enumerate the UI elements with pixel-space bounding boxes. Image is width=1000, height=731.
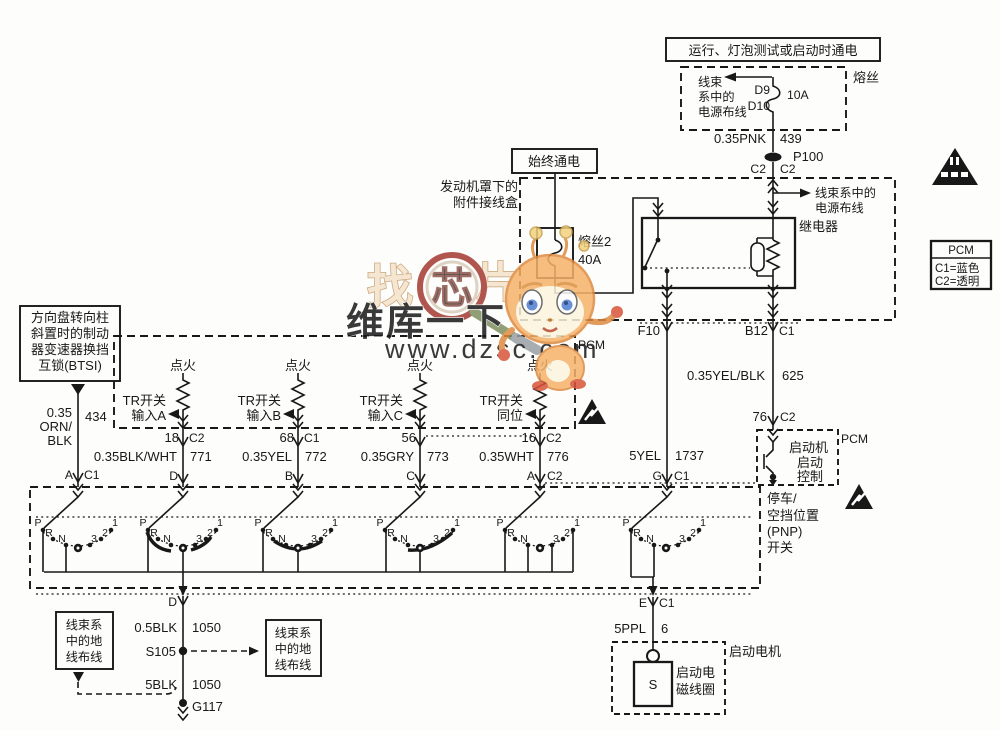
wire-label: 0.35WHT (479, 449, 534, 464)
splice-s105-icon (179, 647, 187, 655)
svg-text:R: R (45, 527, 53, 539)
wire-label: 0.35GRY (361, 449, 415, 464)
conn-c2-left: C2 (750, 162, 766, 176)
svg-text:1: 1 (112, 517, 118, 529)
svg-text:P: P (622, 517, 629, 529)
pnp-label-l3: (PNP) (767, 524, 802, 539)
harness-power-l3: 电源布线 (698, 105, 747, 119)
start-control-pcm: PCM (841, 432, 868, 446)
harness-power-l2: 系中的 (698, 89, 735, 104)
svg-text:R: R (507, 527, 515, 539)
wire-5yel: 5YEL (629, 448, 661, 463)
run-power-section: 运行、灯泡测试或启动时通电 熔丝 线束 系中的 电源布线 D9 D10 10A … (666, 38, 880, 193)
svg-text:线布线: 线布线 (275, 658, 312, 672)
btsi-l1: 方向盘转向柱 (31, 310, 109, 325)
svg-text:P: P (139, 517, 146, 529)
fuse-term-d9: D9 (754, 83, 770, 97)
pnp-unit-1: P R N 3 2 1 (34, 497, 118, 572)
wire-pnk-circuit: 439 (780, 131, 802, 146)
pin-label: 56 (402, 430, 416, 445)
svg-text:3: 3 (433, 533, 439, 545)
arrow-left-icon (724, 73, 736, 82)
wire-5yel-circuit: 1737 (675, 448, 704, 463)
tr-label: TR开关 (360, 393, 403, 408)
wire-yelblk: 0.35YEL/BLK (687, 368, 765, 383)
svg-text:R: R (150, 527, 158, 539)
watermark: 找 片 芯 维库一下 www.dzsc.com (346, 226, 623, 391)
svg-text:N: N (400, 533, 408, 545)
relay-label: 继电器 (799, 219, 838, 234)
btsi-l4: 互锁(BTSI) (38, 358, 102, 373)
start-control-section: 0.35YEL/BLK 625 76 C2 PCM 启动机 启动 控制 (687, 368, 873, 509)
pnp-unit-3: P R N 3 2 1 (254, 497, 338, 572)
arrow-down-icon (179, 586, 188, 596)
legend-row2: C2=透明 (935, 275, 979, 288)
solenoid-terminal-icon (647, 650, 659, 662)
wire-5blk-circuit: 1050 (192, 677, 221, 692)
relay-coil-element (751, 243, 764, 271)
arrow-right-icon (249, 647, 259, 656)
wiring-diagram-page: 运行、灯泡测试或启动时通电 熔丝 线束 系中的 电源布线 D9 D10 10A … (0, 0, 1000, 731)
svg-text:2: 2 (102, 527, 108, 539)
wire-5ppl-circuit: 6 (661, 621, 668, 636)
starter-section: E C1 5PPL 6 启动电机 S 启动电 磁线圈 (612, 596, 781, 714)
arrow-left-icon (405, 409, 416, 419)
fuse-rating: 10A (787, 88, 810, 102)
svg-text:R: R (633, 527, 641, 539)
wiring-diagram: 运行、灯泡测试或启动时通电 熔丝 线束 系中的 电源布线 D9 D10 10A … (0, 0, 1000, 731)
tr-label: 输入A (131, 408, 166, 423)
esd-warning-icon (845, 484, 873, 509)
svg-text:P: P (254, 517, 261, 529)
relay-coil-winding (767, 240, 779, 288)
fuse2-rating: 40A (578, 252, 601, 267)
junction-harness-l2: 电源布线 (815, 201, 864, 215)
solenoid-l1: 启动电 (676, 665, 715, 680)
pin-conn-label: C2 (189, 431, 205, 445)
start-control-l3: 控制 (797, 469, 823, 484)
always-on-label: 始终通电 (528, 154, 580, 169)
wire-label: 0.35YEL (242, 449, 292, 464)
relay-out-f10: F10 (638, 323, 660, 338)
ground-g117-label: G117 (192, 699, 223, 714)
conn-c2-right: C2 (780, 162, 796, 176)
term-conn-label: C2 (547, 469, 563, 483)
junction-name-l1: 发动机罩下的 (440, 179, 518, 194)
circuit-label: 772 (305, 449, 327, 464)
svg-text:线束系: 线束系 (275, 626, 312, 640)
svg-text:P: P (376, 517, 383, 529)
svg-text:3: 3 (196, 533, 202, 545)
term-e-conn: C1 (659, 596, 675, 610)
relay-arm (645, 239, 658, 267)
tr-label: TR开关 (123, 393, 166, 408)
start-control-l2: 启动 (797, 455, 823, 470)
tr-label: TR开关 (238, 393, 281, 408)
tr-label: 输入B (246, 408, 281, 423)
transistor-icon (764, 442, 773, 475)
arrow-right-icon (800, 189, 811, 198)
pin-label: 18 (165, 430, 179, 445)
svg-text:3: 3 (91, 533, 97, 545)
svg-text:3: 3 (679, 533, 685, 545)
relay-box (642, 218, 795, 288)
pin-76: 76 (753, 409, 767, 424)
svg-text:N: N (520, 533, 528, 545)
harness-power-l1: 线束 (698, 75, 722, 89)
svg-text:中的地: 中的地 (66, 633, 103, 648)
wire-ornblk-circuit: 434 (85, 409, 107, 424)
solenoid-s-label: S (649, 677, 658, 692)
term-g-conn: C1 (674, 469, 690, 483)
svg-text:线束系: 线束系 (66, 618, 103, 632)
pnp-unit-2: P R N 3 2 1 (139, 497, 223, 572)
svg-text:R: R (387, 527, 395, 539)
wire-label: 0.35BLK/WHT (94, 449, 177, 464)
legend-row1: C1=蓝色 (935, 261, 980, 275)
hot-warning-icon (932, 148, 978, 185)
esd-warning-icon (578, 399, 606, 424)
term-e: E (639, 596, 647, 610)
pnp-switch-section: 停车/ 空挡位置 (PNP) 开关 P R N 3 2 1 P (30, 487, 819, 596)
btsi-l2: 斜置时的制动 (31, 326, 109, 341)
arrow-left-icon (168, 409, 179, 419)
pnp-label-l1: 停车/ (767, 491, 797, 506)
term-label: A (527, 469, 536, 483)
pin-label: 68 (280, 430, 294, 445)
circuit-label: 773 (427, 449, 449, 464)
legend-section: PCM C1=蓝色 C2=透明 (931, 148, 991, 289)
arrow-left-icon (283, 409, 294, 419)
term-label: B (285, 469, 293, 483)
ground-section: D 0.5BLK 1050 S105 5BLK 1050 G117 线束系 中的… (56, 595, 321, 720)
pnp-unit-6: P R N 3 2 1 (622, 497, 706, 590)
ignition-label: 点火 (170, 358, 196, 373)
splice-p100-icon (765, 153, 782, 162)
starter-motor-label: 启动电机 (729, 644, 781, 659)
fuse-name-label: 熔丝 (853, 70, 879, 85)
svg-text:1: 1 (217, 517, 223, 529)
svg-text:中的地: 中的地 (275, 641, 312, 656)
run-power-label: 运行、灯泡测试或启动时通电 (688, 43, 857, 58)
svg-text:2: 2 (444, 527, 450, 539)
circuit-label: 776 (547, 449, 569, 464)
svg-text:P: P (496, 517, 503, 529)
tr-label: 同位 (497, 408, 523, 423)
ground-dot-icon (179, 699, 187, 707)
term-label: D (169, 469, 178, 483)
svg-text:2: 2 (690, 527, 696, 539)
wire-5blk: 5BLK (145, 677, 177, 692)
term-a: A (65, 468, 74, 482)
pin-conn-label: C1 (304, 431, 320, 445)
wire-pnk-label: 0.35PNK (714, 131, 766, 146)
pin-76-conn: C2 (780, 410, 796, 424)
svg-text:R: R (265, 527, 273, 539)
btsi-l3: 器变速器换挡 (31, 342, 109, 357)
wire-yelblk-circuit: 625 (782, 368, 804, 383)
tr-label: 输入C (368, 408, 403, 423)
ground-chevron-icon (178, 707, 188, 720)
svg-text:2: 2 (564, 527, 570, 539)
term-label: C (406, 469, 415, 483)
pnp-label-l4: 开关 (767, 540, 793, 555)
wire-ornblk-l3: BLK (47, 433, 72, 448)
pnp-label-l2: 空挡位置 (767, 508, 819, 523)
wire-05blk: 0.5BLK (134, 620, 177, 635)
svg-text:P: P (34, 517, 41, 529)
svg-text:1: 1 (454, 517, 460, 529)
svg-text:N: N (58, 533, 66, 545)
pnp-unit-5: P R N 3 2 1 (496, 497, 580, 572)
legend-title: PCM (948, 245, 974, 257)
term-g: G (653, 469, 662, 483)
wire-ornblk-l2: ORN/ (40, 419, 73, 434)
arrow-down-icon (73, 672, 84, 682)
svg-text:1: 1 (332, 517, 338, 529)
wire-05blk-circuit: 1050 (192, 620, 221, 635)
term-d-bottom: D (168, 595, 177, 609)
pin-conn-label: C2 (546, 431, 562, 445)
splice-p100-label: P100 (793, 149, 823, 164)
svg-text:1: 1 (700, 517, 706, 529)
wire-5ppl: 5PPL (614, 621, 646, 636)
arrow-left-icon (525, 409, 536, 419)
svg-text:1: 1 (574, 517, 580, 529)
start-control-l1: 启动机 (789, 440, 828, 455)
svg-text:N: N (163, 533, 171, 545)
circuit-label: 771 (190, 449, 212, 464)
svg-text:2: 2 (322, 527, 328, 539)
pin-label: 16 (522, 430, 536, 445)
svg-text:N: N (646, 533, 654, 545)
relay-out-b12-conn: C1 (779, 324, 795, 338)
splice-s105-label: S105 (146, 644, 176, 659)
btsi-section: 方向盘转向柱 斜置时的制动 器变速器换挡 互锁(BTSI) 0.35 ORN/ … (20, 306, 120, 497)
svg-text:2: 2 (207, 527, 213, 539)
wire-ornblk-l1: 0.35 (47, 405, 72, 420)
svg-text:线布线: 线布线 (66, 650, 103, 664)
tr-label: TR开关 (480, 393, 523, 408)
term-a-conn: C1 (84, 468, 100, 482)
svg-text:3: 3 (553, 533, 559, 545)
junction-harness-l1: 线束系中的 (815, 185, 876, 200)
ignition-label: 点火 (285, 358, 311, 373)
junction-box-section: 始终通电 发动机罩下的 附件接线盒 熔丝2 40A 线束系中的 电源布线 继电器 (440, 149, 895, 487)
pnp-unit-4: P R N 3 2 1 (376, 497, 460, 572)
junction-name-l2: 附件接线盒 (453, 195, 518, 210)
relay-out-b12: B12 (745, 323, 768, 338)
svg-text:N: N (278, 533, 286, 545)
svg-text:3: 3 (311, 533, 317, 545)
solenoid-l2: 磁线圈 (676, 682, 715, 697)
